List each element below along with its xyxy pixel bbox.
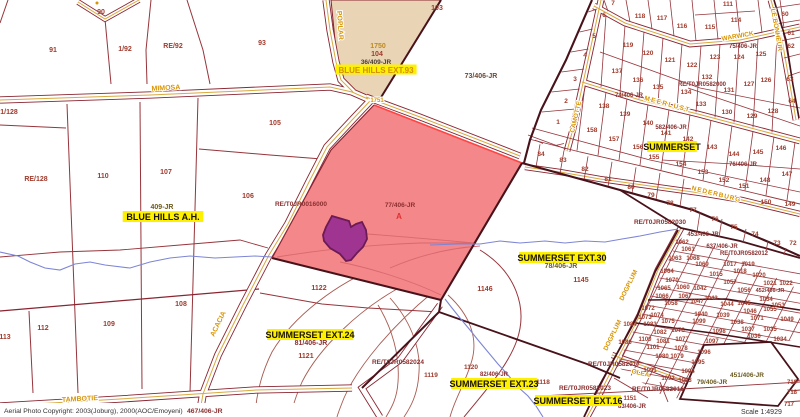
svg-text:1018: 1018 (733, 269, 747, 275)
svg-text:130: 130 (722, 109, 733, 116)
svg-text:74: 74 (751, 231, 759, 238)
svg-text:3: 3 (573, 76, 577, 83)
svg-text:1065: 1065 (657, 286, 671, 292)
svg-text:BLUE HILLS A.H.: BLUE HILLS A.H. (126, 212, 199, 222)
svg-text:73: 73 (773, 240, 781, 247)
svg-text:1064: 1064 (660, 269, 674, 275)
svg-text:105: 105 (269, 120, 281, 127)
svg-text:2: 2 (564, 98, 568, 105)
svg-text:1095: 1095 (691, 360, 705, 366)
svg-text:123: 123 (710, 54, 721, 61)
svg-text:136: 136 (633, 77, 644, 84)
svg-text:80: 80 (627, 184, 635, 191)
svg-text:RE/T0JR0582023: RE/T0JR0582023 (559, 385, 611, 392)
svg-text:127: 127 (744, 81, 755, 88)
svg-text:BLUE HILLS EXT.93: BLUE HILLS EXT.93 (338, 66, 414, 75)
svg-text:1040: 1040 (694, 312, 708, 318)
svg-text:147: 147 (782, 171, 793, 178)
svg-text:1022: 1022 (779, 281, 793, 287)
svg-text:135: 135 (653, 84, 664, 91)
svg-text:75/406-JR: 75/406-JR (729, 44, 758, 50)
svg-text:81/406-JR: 81/406-JR (295, 340, 328, 347)
svg-text:1047: 1047 (690, 299, 704, 305)
svg-text:1046: 1046 (743, 309, 757, 315)
svg-text:110: 110 (97, 173, 108, 180)
svg-text:117: 117 (657, 15, 668, 22)
svg-text:1078: 1078 (674, 346, 688, 352)
svg-text:1101: 1101 (646, 345, 660, 351)
svg-text:113: 113 (0, 334, 11, 341)
svg-text:1056: 1056 (737, 288, 751, 294)
svg-text:156: 156 (633, 144, 644, 151)
svg-text:74/406-JR: 74/406-JR (615, 93, 644, 99)
svg-text:1043: 1043 (704, 296, 718, 302)
svg-text:82/406-JR: 82/406-JR (480, 372, 509, 378)
svg-text:1019: 1019 (741, 262, 755, 268)
svg-text:1077: 1077 (675, 337, 689, 343)
svg-text:120: 120 (643, 50, 654, 57)
svg-text:1/128: 1/128 (0, 109, 18, 116)
svg-text:133: 133 (696, 101, 707, 108)
svg-text:126: 126 (761, 77, 772, 84)
svg-text:1075: 1075 (661, 319, 675, 325)
svg-text:1017: 1017 (723, 262, 737, 268)
svg-text:144: 144 (729, 151, 740, 158)
svg-text:75: 75 (730, 224, 738, 231)
svg-text:1037: 1037 (741, 327, 755, 333)
svg-text:1096: 1096 (697, 350, 711, 356)
svg-text:RE/T0JR0016000: RE/T0JR0016000 (275, 201, 327, 208)
svg-text:SUMMERSET EXT.23: SUMMERSET EXT.23 (449, 379, 538, 389)
svg-text:RE/T0JR0582024: RE/T0JR0582024 (372, 359, 424, 366)
svg-text:1039: 1039 (716, 313, 730, 319)
svg-text:141: 141 (661, 130, 672, 137)
svg-text:158: 158 (587, 127, 598, 134)
svg-text:637/406-JR: 637/406-JR (706, 244, 738, 250)
svg-text:RE/T0JR0582016: RE/T0JR0582016 (632, 386, 684, 393)
svg-text:63: 63 (786, 76, 794, 83)
svg-text:138: 138 (599, 103, 610, 110)
svg-text:582/406-JR: 582/406-JR (655, 125, 687, 131)
svg-text:124: 124 (734, 54, 745, 61)
svg-text:91: 91 (49, 47, 57, 54)
svg-text:1057: 1057 (723, 280, 737, 286)
svg-text:62: 62 (787, 43, 795, 50)
svg-text:81: 81 (604, 176, 612, 183)
svg-text:SUMMERSET EXT.24: SUMMERSET EXT.24 (265, 330, 354, 340)
svg-text:83: 83 (559, 157, 567, 164)
svg-text:1083: 1083 (643, 322, 657, 328)
svg-text:1062: 1062 (675, 240, 689, 246)
svg-text:82: 82 (581, 166, 589, 173)
svg-text:154: 154 (676, 161, 687, 168)
svg-text:1151: 1151 (623, 396, 637, 402)
svg-text:SUMMERSET EXT.16: SUMMERSET EXT.16 (533, 396, 622, 406)
svg-text:1034: 1034 (773, 337, 787, 343)
svg-text:139: 139 (620, 111, 631, 118)
svg-text:1076: 1076 (671, 328, 685, 334)
svg-text:A: A (396, 212, 402, 221)
svg-text:129: 129 (747, 113, 758, 120)
svg-text:93: 93 (258, 40, 266, 47)
svg-text:77/406-JR: 77/406-JR (385, 202, 416, 209)
svg-text:RE/T0JR0582017: RE/T0JR0582017 (588, 361, 640, 368)
svg-text:76/406-JR: 76/406-JR (729, 162, 758, 168)
svg-text:SUMMERSET EXT.30: SUMMERSET EXT.30 (517, 253, 606, 263)
svg-text:111: 111 (723, 1, 734, 8)
svg-text:7: 7 (611, 0, 615, 7)
svg-text:61: 61 (787, 30, 795, 37)
svg-text:1094: 1094 (681, 369, 695, 375)
svg-text:103: 103 (431, 5, 443, 12)
svg-text:1099: 1099 (692, 319, 706, 325)
svg-text:4: 4 (583, 52, 587, 59)
svg-text:1058: 1058 (664, 301, 678, 307)
svg-text:108: 108 (175, 301, 187, 308)
svg-text:1100: 1100 (638, 337, 652, 343)
svg-text:64: 64 (788, 98, 796, 105)
svg-text:137: 137 (612, 68, 623, 75)
svg-text:150: 150 (761, 199, 772, 206)
svg-text:1091: 1091 (643, 368, 657, 374)
svg-text:1045: 1045 (737, 301, 751, 307)
svg-text:118: 118 (635, 13, 646, 20)
svg-text:104: 104 (371, 51, 383, 58)
svg-text:1015: 1015 (709, 272, 723, 278)
svg-text:1021: 1021 (763, 281, 777, 287)
svg-text:77: 77 (689, 207, 697, 214)
svg-text:1121: 1121 (298, 353, 313, 360)
svg-text:145: 145 (753, 149, 764, 156)
svg-text:132: 132 (702, 74, 713, 81)
svg-text:1069: 1069 (695, 262, 709, 268)
svg-text:119: 119 (623, 42, 634, 49)
svg-text:1122: 1122 (311, 285, 326, 292)
svg-text:115: 115 (705, 24, 716, 31)
svg-text:78: 78 (666, 200, 674, 207)
svg-text:79/406-JR: 79/406-JR (697, 379, 728, 386)
svg-text:128: 128 (768, 108, 779, 115)
svg-text:1086: 1086 (618, 340, 632, 346)
svg-text:109: 109 (103, 321, 115, 328)
svg-text:73/406-JR: 73/406-JR (465, 73, 498, 80)
svg-text:RE/T0JR0582012: RE/T0JR0582012 (720, 251, 769, 257)
svg-text:718: 718 (787, 390, 798, 396)
svg-text:152: 152 (719, 177, 730, 184)
svg-text:1061: 1061 (681, 247, 695, 253)
svg-text:122: 122 (687, 62, 698, 69)
svg-text:140: 140 (643, 120, 654, 127)
svg-text:116: 116 (677, 23, 688, 30)
svg-text:RE/92: RE/92 (163, 43, 183, 50)
svg-text:1060: 1060 (676, 285, 690, 291)
svg-text:1146: 1146 (477, 286, 492, 293)
svg-text:153: 153 (698, 169, 709, 176)
svg-text:1082: 1082 (653, 330, 667, 336)
svg-text:134: 134 (681, 89, 692, 96)
svg-text:1084: 1084 (623, 322, 637, 328)
svg-text:151: 151 (739, 183, 750, 190)
svg-text:1042: 1042 (693, 286, 707, 292)
svg-text:1097: 1097 (705, 339, 719, 345)
svg-text:107: 107 (160, 169, 172, 176)
svg-text:467/406-JR: 467/406-JR (187, 408, 223, 415)
svg-text:1751: 1751 (370, 98, 384, 104)
svg-text:1093: 1093 (678, 378, 692, 384)
svg-text:1750: 1750 (370, 43, 386, 50)
svg-text:1098: 1098 (712, 329, 726, 335)
svg-text:146: 146 (776, 145, 787, 152)
svg-text:155: 155 (649, 154, 660, 161)
svg-text:72: 72 (789, 240, 797, 247)
svg-text:131: 131 (724, 87, 735, 94)
svg-text:106: 106 (242, 193, 254, 200)
svg-text:5: 5 (592, 33, 596, 40)
svg-text:1044: 1044 (720, 302, 734, 308)
svg-text:76: 76 (711, 216, 719, 223)
svg-text:1055: 1055 (763, 307, 777, 313)
svg-text:719: 719 (787, 380, 798, 386)
svg-text:1036: 1036 (747, 334, 761, 340)
svg-text:78/406-JR: 78/406-JR (545, 263, 578, 270)
svg-text:1145: 1145 (573, 277, 588, 284)
svg-text:121: 121 (665, 57, 676, 64)
svg-text:1120: 1120 (464, 364, 478, 371)
svg-text:RE/T0JR0582030: RE/T0JR0582030 (634, 219, 686, 226)
svg-text:125: 125 (756, 51, 767, 58)
svg-text:148: 148 (760, 177, 771, 184)
svg-text:1: 1 (556, 119, 560, 126)
svg-text:1079: 1079 (670, 354, 684, 360)
svg-text:1072: 1072 (641, 306, 655, 312)
svg-text:Aerial Photo Copyright: 2003(: Aerial Photo Copyright: 2003(Joburg), 20… (4, 408, 183, 415)
svg-text:79: 79 (647, 192, 655, 199)
svg-text:84: 84 (537, 151, 545, 158)
svg-text:1038: 1038 (730, 320, 744, 326)
svg-text:1066: 1066 (655, 294, 669, 300)
svg-text:RE/T0JR0582000: RE/T0JR0582000 (678, 82, 727, 88)
svg-text:409-JR: 409-JR (151, 204, 174, 211)
svg-text:Scale 1:4929: Scale 1:4929 (741, 409, 782, 416)
svg-text:114: 114 (731, 17, 742, 24)
svg-text:452/406-JR: 452/406-JR (756, 288, 785, 294)
svg-text:451/406-JR: 451/406-JR (730, 372, 764, 379)
svg-text:90: 90 (97, 9, 105, 16)
svg-text:112: 112 (37, 325, 48, 332)
svg-text:1080: 1080 (655, 354, 669, 360)
svg-text:1/92: 1/92 (118, 46, 132, 53)
svg-text:1049: 1049 (780, 317, 794, 323)
svg-text:1119: 1119 (424, 372, 438, 379)
svg-text:717: 717 (784, 402, 795, 408)
svg-text:1092: 1092 (661, 376, 675, 382)
svg-text:RE/128: RE/128 (24, 176, 47, 183)
svg-text:1070: 1070 (665, 278, 679, 284)
svg-text:1035: 1035 (763, 327, 777, 333)
svg-text:157: 157 (609, 136, 620, 143)
svg-text:1071: 1071 (750, 316, 764, 322)
svg-text:SUMMERSET: SUMMERSET (643, 142, 701, 152)
svg-text:453/406-JR: 453/406-JR (687, 232, 719, 238)
svg-text:1063: 1063 (668, 256, 682, 262)
svg-text:6: 6 (602, 12, 606, 19)
svg-text:60: 60 (781, 11, 789, 18)
svg-text:149: 149 (785, 201, 796, 208)
svg-text:143: 143 (707, 144, 718, 151)
svg-text:1020: 1020 (752, 273, 766, 279)
